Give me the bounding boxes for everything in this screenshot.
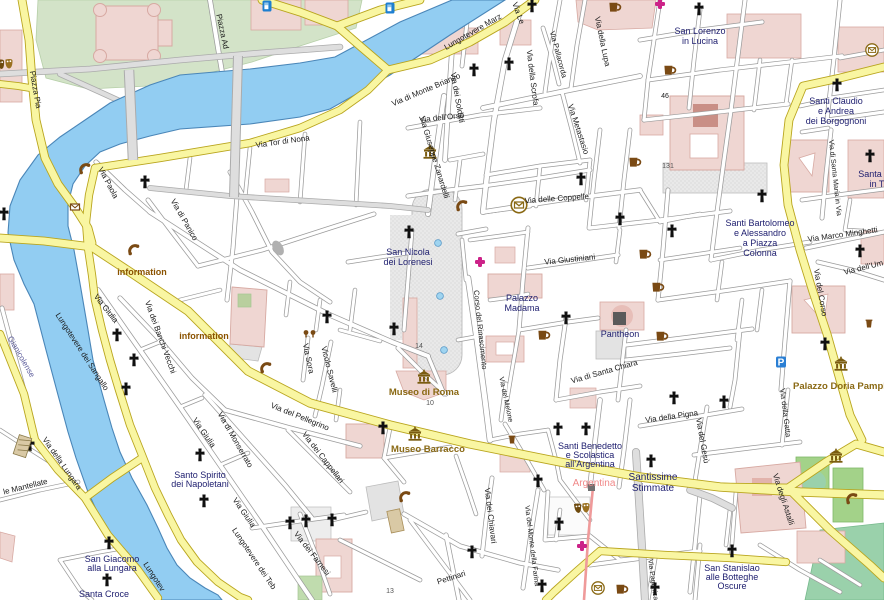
svg-text:San Nicola: San Nicola	[386, 247, 430, 257]
svg-text:Stimmate: Stimmate	[632, 483, 675, 494]
svg-text:Santi Bartolomeo: Santi Bartolomeo	[725, 218, 794, 228]
svg-text:10: 10	[426, 400, 434, 407]
svg-text:dei Borgognoni: dei Borgognoni	[806, 116, 867, 126]
svg-text:in Lucina: in Lucina	[682, 36, 718, 46]
svg-text:dei Napoletani: dei Napoletani	[171, 479, 229, 489]
svg-text:Palazzo: Palazzo	[506, 293, 538, 303]
svg-text:dei Lorenesi: dei Lorenesi	[383, 257, 432, 267]
svg-text:San Lorenzo: San Lorenzo	[674, 26, 725, 36]
svg-text:Oscure: Oscure	[717, 581, 746, 591]
svg-text:information: information	[117, 267, 167, 277]
svg-text:Museo Barracco: Museo Barracco	[391, 444, 465, 455]
svg-text:alla Lungara: alla Lungara	[87, 563, 137, 573]
svg-text:Argentina: Argentina	[573, 478, 616, 489]
svg-text:Santi Claudio: Santi Claudio	[809, 96, 863, 106]
svg-text:all’Argentina: all’Argentina	[565, 459, 615, 469]
svg-text:Madama: Madama	[504, 303, 539, 313]
svg-text:Santa Croce: Santa Croce	[79, 589, 129, 599]
svg-text:Pantheon: Pantheon	[601, 329, 640, 339]
svg-text:131: 131	[662, 163, 674, 170]
svg-text:Palazzo Doria Pamphilj: Palazzo Doria Pamphilj	[793, 381, 884, 392]
svg-text:Museo di Roma: Museo di Roma	[389, 387, 460, 398]
svg-text:Santissime: Santissime	[629, 472, 678, 483]
svg-text:Santa: Santa	[858, 169, 882, 179]
svg-text:a Piazza: a Piazza	[743, 238, 778, 248]
svg-text:information: information	[179, 331, 229, 341]
svg-text:14: 14	[415, 343, 423, 350]
svg-text:e Andrea: e Andrea	[818, 106, 854, 116]
svg-text:in T: in T	[870, 179, 884, 189]
svg-text:e Alessandro: e Alessandro	[734, 228, 786, 238]
svg-text:13: 13	[386, 588, 394, 595]
svg-text:Colonna: Colonna	[743, 248, 777, 258]
svg-text:46: 46	[661, 93, 669, 100]
